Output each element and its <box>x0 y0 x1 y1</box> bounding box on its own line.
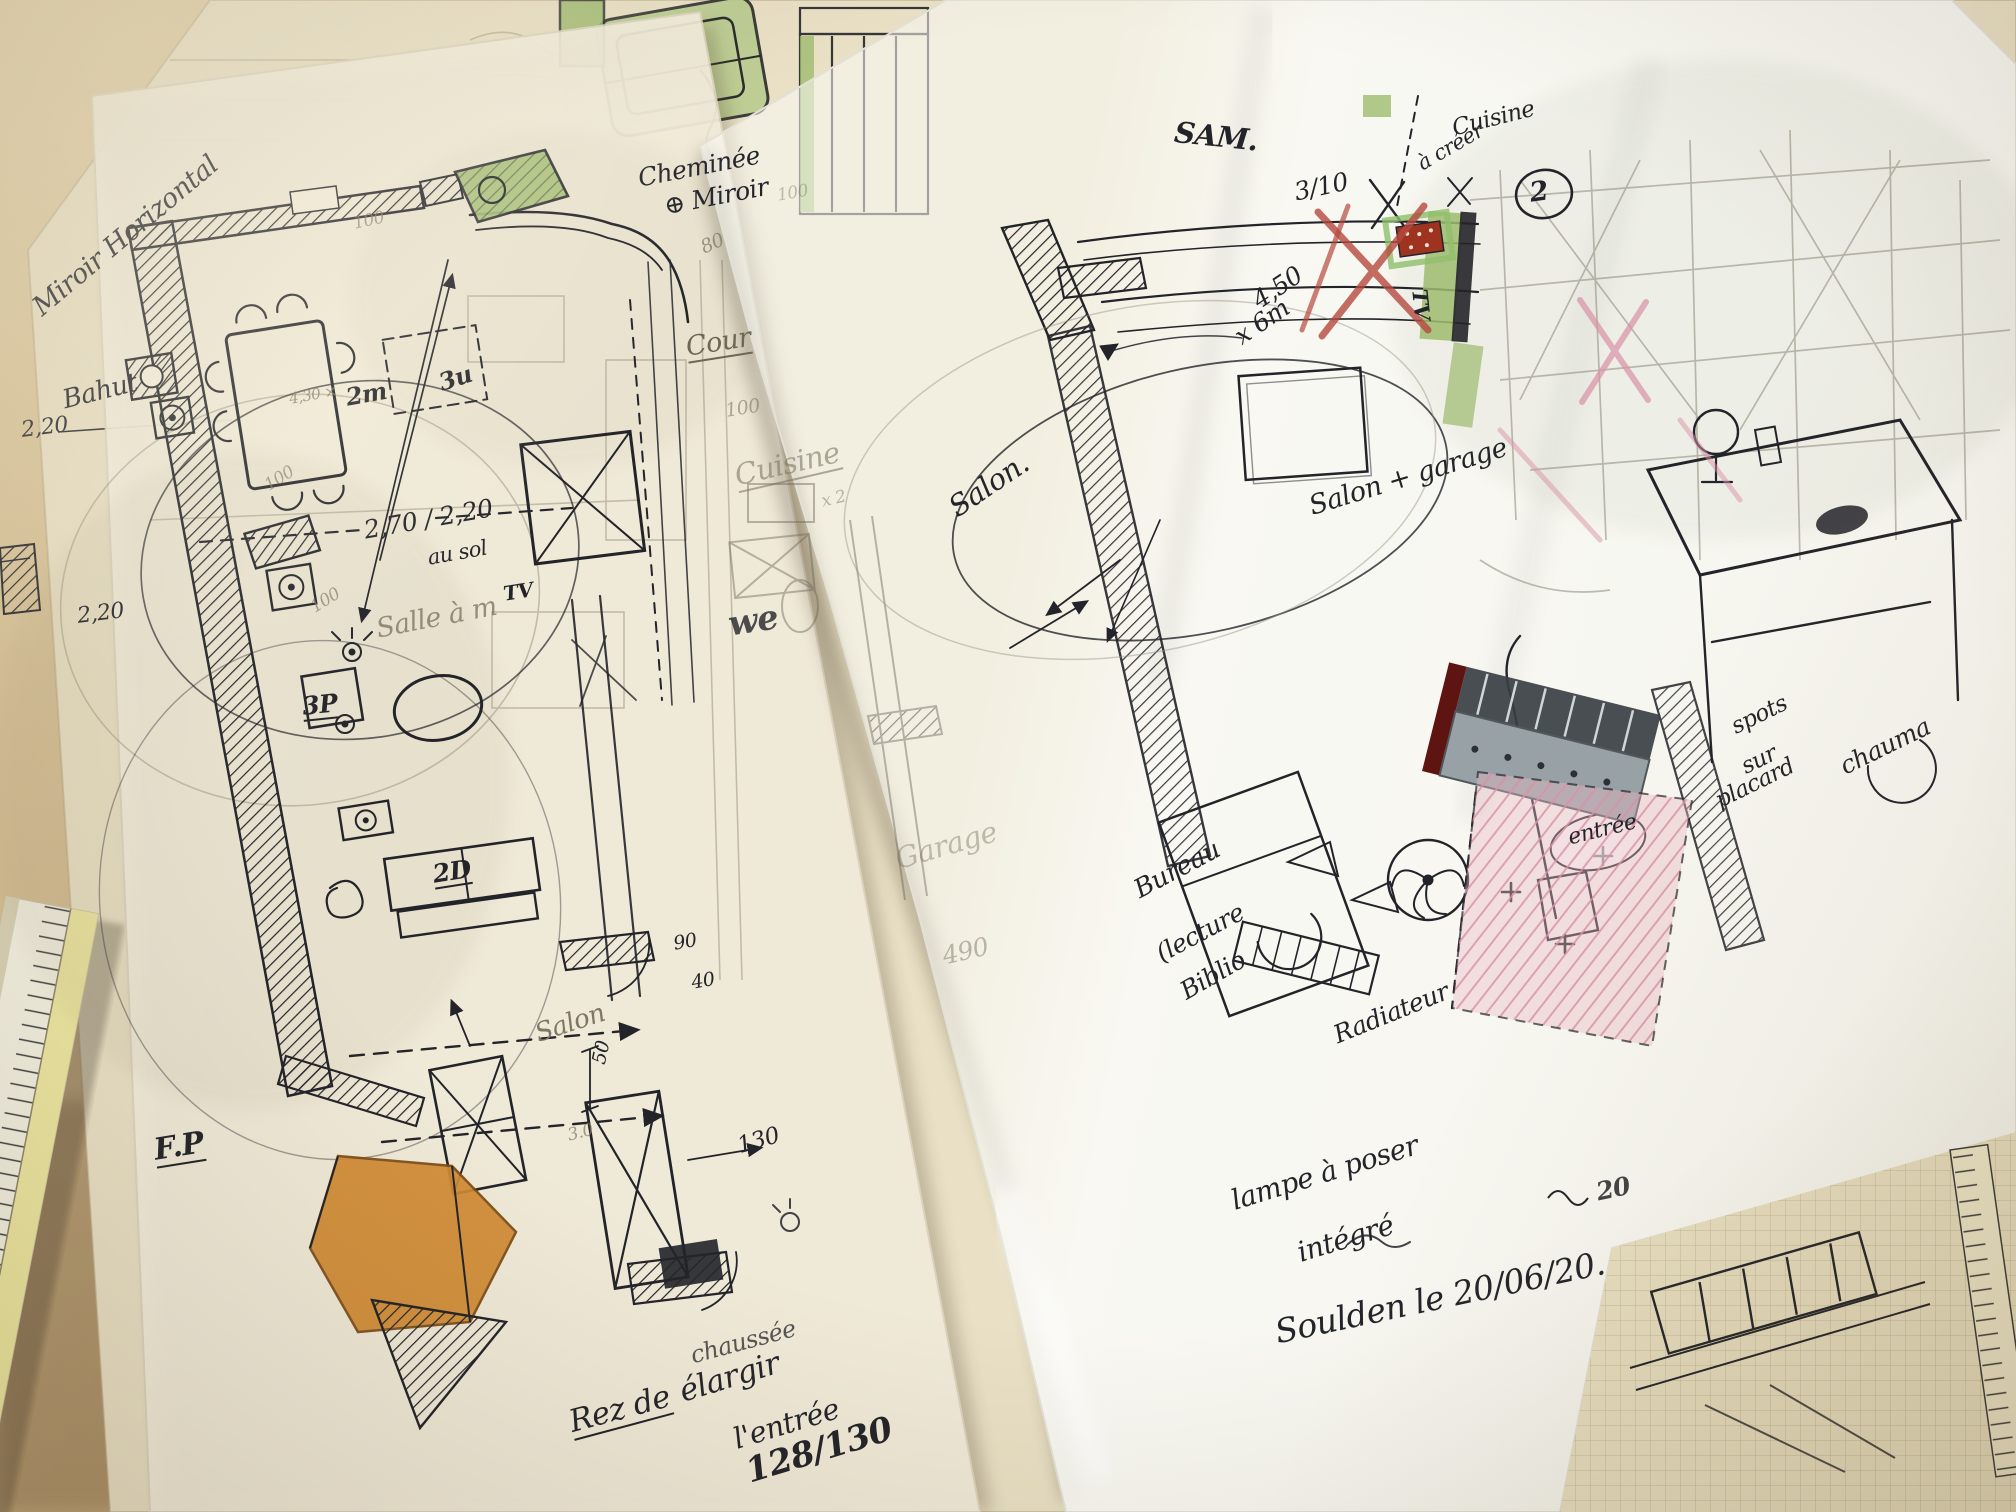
label-sam: SAM. <box>1173 118 1259 156</box>
label-tv-right: TV <box>1409 288 1433 321</box>
brick-element <box>1396 221 1444 257</box>
label-dim-50: 50 <box>590 1039 613 1066</box>
label-dim-40: 40 <box>690 970 716 993</box>
sketch-photo-svg <box>0 0 2016 1512</box>
label-dim-90: 90 <box>672 931 698 954</box>
label-dim-100-cour: 100 <box>724 397 761 421</box>
circle-2-ring <box>1500 160 1590 230</box>
label-page-20: 20 <box>1594 1173 1632 1204</box>
label-2d: 2D <box>431 856 473 890</box>
pink-entry-zone <box>1452 772 1692 1046</box>
photo-of-floorplan-sketches: Miroir Horizontal Bahut 4,30 × 2m 3u Che… <box>0 0 2016 1512</box>
label-3p: 3P <box>301 690 339 722</box>
label-dim-220-b: 2,20 <box>76 600 125 628</box>
label-tv-left: TV <box>502 579 534 603</box>
label-dim-220-a: 2,20 <box>20 414 69 442</box>
label-wc: we <box>726 600 781 641</box>
label-dim-2m: 2m <box>344 379 389 410</box>
